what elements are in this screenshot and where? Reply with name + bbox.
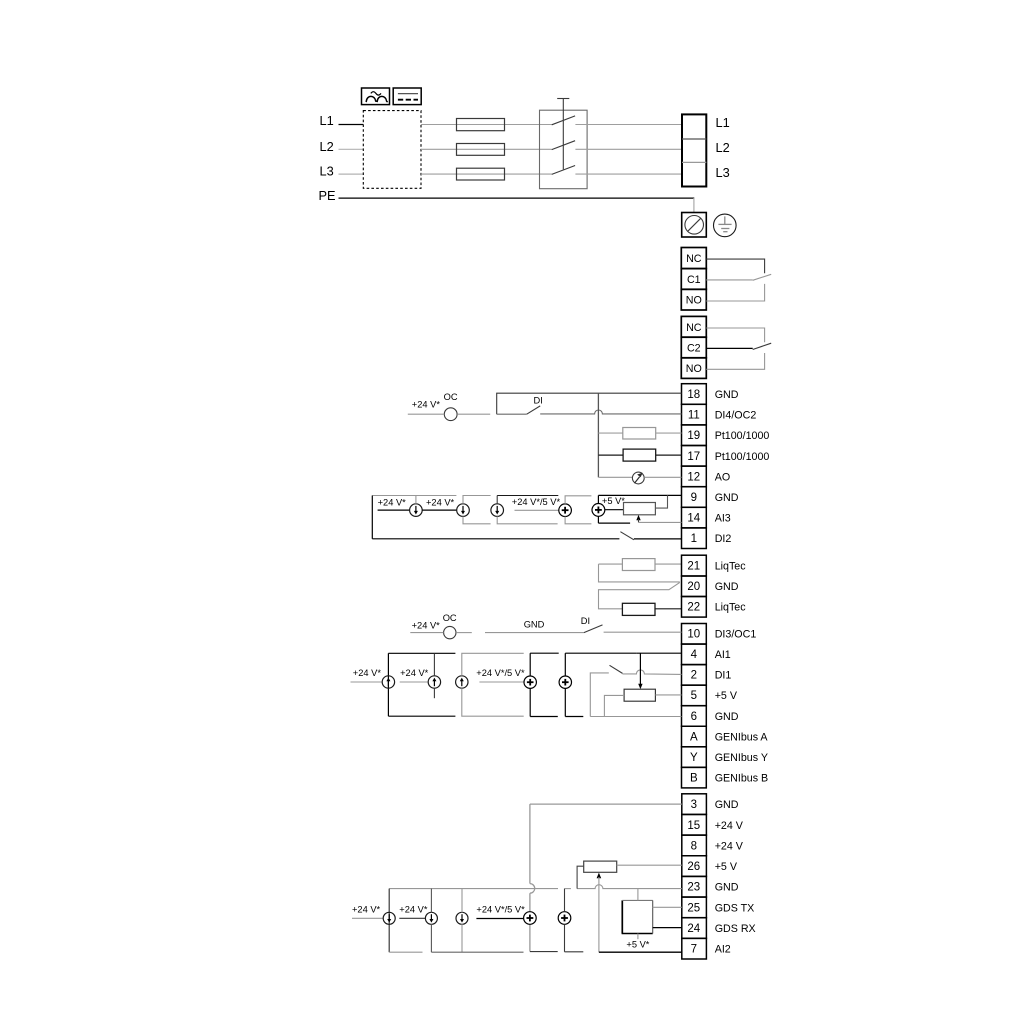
svg-text:11: 11 bbox=[688, 410, 700, 422]
svg-text:2: 2 bbox=[691, 670, 697, 682]
svg-text:DI1: DI1 bbox=[715, 670, 732, 682]
svg-text:DI: DI bbox=[534, 396, 543, 406]
svg-text:L3: L3 bbox=[716, 165, 730, 180]
svg-text:25: 25 bbox=[687, 902, 700, 914]
svg-text:+5 V*: +5 V* bbox=[626, 939, 649, 949]
svg-text:17: 17 bbox=[687, 451, 700, 463]
svg-text:NO: NO bbox=[686, 363, 702, 375]
svg-text:B: B bbox=[690, 772, 698, 784]
svg-text:GENIbus Y: GENIbus Y bbox=[715, 752, 768, 764]
svg-text:L2: L2 bbox=[320, 139, 334, 154]
svg-text:C1: C1 bbox=[687, 274, 701, 286]
svg-text:7: 7 bbox=[691, 944, 697, 956]
svg-text:26: 26 bbox=[687, 861, 700, 873]
svg-text:+5 V*: +5 V* bbox=[602, 496, 625, 506]
svg-text:20: 20 bbox=[687, 581, 700, 593]
svg-text:21: 21 bbox=[687, 561, 700, 573]
svg-text:L3: L3 bbox=[320, 163, 334, 178]
svg-text:C2: C2 bbox=[687, 343, 701, 355]
svg-text:NC: NC bbox=[686, 253, 702, 265]
svg-text:L1: L1 bbox=[320, 113, 334, 128]
svg-text:18: 18 bbox=[687, 389, 700, 401]
svg-text:+24 V*/5 V*: +24 V*/5 V* bbox=[476, 904, 525, 914]
svg-text:LiqTec: LiqTec bbox=[715, 602, 747, 614]
svg-text:+24 V*/5 V*: +24 V*/5 V* bbox=[512, 497, 561, 507]
svg-text:1: 1 bbox=[691, 533, 697, 545]
svg-text:23: 23 bbox=[687, 882, 700, 894]
svg-text:GND: GND bbox=[715, 581, 739, 593]
svg-text:14: 14 bbox=[687, 513, 700, 525]
svg-text:DI: DI bbox=[581, 616, 590, 626]
svg-text:+24 V*: +24 V* bbox=[412, 400, 441, 410]
svg-text:10: 10 bbox=[687, 629, 700, 641]
svg-text:+24 V*/5 V*: +24 V*/5 V* bbox=[476, 668, 525, 678]
svg-text:3: 3 bbox=[691, 799, 697, 811]
svg-text:+24 V: +24 V bbox=[715, 820, 744, 832]
svg-text:AI3: AI3 bbox=[715, 513, 731, 525]
svg-text:AO: AO bbox=[715, 471, 730, 483]
svg-text:DI2: DI2 bbox=[715, 533, 732, 545]
svg-text:GND: GND bbox=[715, 882, 739, 894]
svg-text:Pt100/1000: Pt100/1000 bbox=[715, 430, 770, 442]
svg-text:OC: OC bbox=[444, 392, 458, 402]
svg-text:DI3/OC1: DI3/OC1 bbox=[715, 629, 757, 641]
svg-text:A: A bbox=[690, 731, 698, 743]
svg-text:AI2: AI2 bbox=[715, 944, 731, 956]
svg-text:19: 19 bbox=[687, 430, 700, 442]
svg-text:GND: GND bbox=[524, 620, 545, 630]
svg-text:+24 V: +24 V bbox=[715, 840, 744, 852]
svg-text:Y: Y bbox=[690, 752, 698, 764]
svg-text:GND: GND bbox=[715, 711, 739, 723]
svg-text:5: 5 bbox=[691, 690, 697, 702]
svg-text:4: 4 bbox=[691, 649, 698, 661]
svg-text:6: 6 bbox=[691, 711, 697, 723]
svg-text:22: 22 bbox=[687, 602, 700, 614]
svg-text:GENIbus A: GENIbus A bbox=[715, 731, 769, 743]
svg-text:GDS TX: GDS TX bbox=[715, 902, 755, 914]
svg-text:NO: NO bbox=[686, 295, 702, 307]
svg-text:NC: NC bbox=[686, 322, 702, 334]
svg-text:+5 V: +5 V bbox=[715, 861, 738, 873]
svg-text:+24 V*: +24 V* bbox=[353, 668, 382, 678]
svg-text:PE: PE bbox=[319, 188, 336, 203]
svg-text:+24 V*: +24 V* bbox=[352, 904, 381, 914]
svg-text:GND: GND bbox=[715, 492, 739, 504]
svg-text:24: 24 bbox=[687, 923, 700, 935]
svg-text:LiqTec: LiqTec bbox=[715, 561, 747, 573]
svg-text:15: 15 bbox=[687, 820, 700, 832]
svg-text:GND: GND bbox=[715, 389, 739, 401]
svg-text:GDS RX: GDS RX bbox=[715, 923, 756, 935]
svg-text:8: 8 bbox=[691, 840, 697, 852]
svg-text:9: 9 bbox=[691, 492, 697, 504]
svg-text:L1: L1 bbox=[716, 115, 730, 130]
svg-text:Pt100/1000: Pt100/1000 bbox=[715, 451, 770, 463]
svg-text:+24 V*: +24 V* bbox=[400, 668, 429, 678]
svg-text:+24 V*: +24 V* bbox=[378, 497, 407, 507]
svg-text:OC: OC bbox=[443, 613, 457, 623]
svg-text:12: 12 bbox=[687, 471, 700, 483]
svg-text:AI1: AI1 bbox=[715, 649, 731, 661]
svg-text:DI4/OC2: DI4/OC2 bbox=[715, 410, 757, 422]
svg-text:GND: GND bbox=[715, 799, 739, 811]
svg-text:GENIbus B: GENIbus B bbox=[715, 772, 768, 784]
svg-text:+24 V*: +24 V* bbox=[412, 620, 441, 630]
svg-text:+5 V: +5 V bbox=[715, 690, 738, 702]
svg-text:+24 V*: +24 V* bbox=[399, 904, 428, 914]
svg-text:+24 V*: +24 V* bbox=[426, 497, 455, 507]
svg-text:L2: L2 bbox=[716, 140, 730, 155]
